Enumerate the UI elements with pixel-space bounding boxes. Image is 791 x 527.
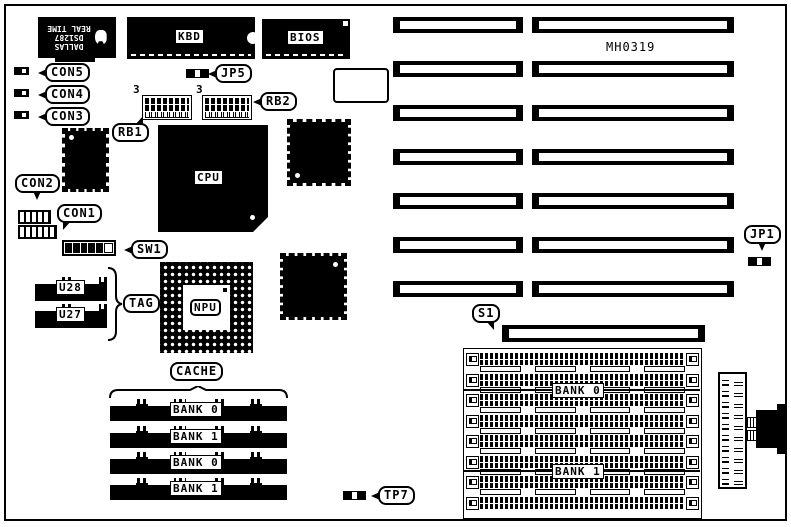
- rb1-callout: RB1: [112, 123, 149, 142]
- simm-latch-icon: [466, 415, 479, 428]
- pin1-mark: [223, 288, 227, 292]
- simm-memory-chip: [590, 448, 631, 454]
- simm-memory-chip: [644, 489, 685, 495]
- tag-callout: TAG: [123, 294, 160, 313]
- rb2-resistor-pack: [202, 95, 252, 120]
- cache-bank-label: BANK 1: [170, 429, 222, 444]
- pin1-dot: [69, 135, 74, 140]
- jp5-callout: JP5: [215, 64, 252, 83]
- jp5-jumper-icon: [186, 69, 209, 78]
- simm-chip-row: [480, 428, 685, 434]
- sw1-callout: SW1: [131, 240, 168, 259]
- oscillator-footprint: [333, 68, 389, 103]
- simm-latch-icon: [686, 456, 699, 469]
- simm-memory-chip: [480, 428, 521, 434]
- rtc-chip-print: DALLAS DS1287 REAL TIME: [40, 19, 114, 56]
- rb2-pin1-number: 3: [196, 83, 203, 96]
- con5-connector-icon: [14, 67, 29, 75]
- simm-latch-icon: [686, 374, 699, 387]
- sw1-dip-switch: [62, 240, 116, 256]
- rtc-function: REAL TIME: [47, 24, 90, 33]
- simm-memory-chip: [535, 428, 576, 434]
- cache-bank-label: BANK 0: [170, 402, 222, 417]
- simm-latch-icon: [686, 415, 699, 428]
- rtc-chip: DALLAS DS1287 REAL TIME: [38, 17, 116, 58]
- simm-bank0-label: BANK 0: [552, 383, 604, 398]
- simm-latch-icon: [686, 476, 699, 489]
- simm-memory-chip: [480, 448, 521, 454]
- kbd-chip-notch: [247, 32, 259, 44]
- cache-bank-label: BANK 1: [170, 481, 222, 496]
- npu-socket-cavity: NPU: [183, 285, 230, 330]
- din-aux-connector: [746, 417, 757, 428]
- simm-chip-row: [480, 489, 685, 495]
- dallas-logo-icon: [95, 30, 107, 45]
- simm-latch-icon: [466, 435, 479, 448]
- rtc-pins: [55, 58, 95, 62]
- u28-label: U28: [56, 280, 85, 295]
- simm-memory-chip: [590, 428, 631, 434]
- con3-callout: CON3: [45, 107, 90, 126]
- simm-memory-chip: [644, 428, 685, 434]
- isa-slot-16bit: [532, 281, 734, 297]
- simm-memory-chip: [535, 448, 576, 454]
- simm-latch-icon: [686, 497, 699, 510]
- isa-slot-8bit: [393, 193, 523, 209]
- simm-bank1-label: BANK 1: [552, 464, 604, 479]
- simm-socket: [480, 497, 685, 509]
- isa-slot-16bit: [532, 149, 734, 165]
- simm-socket-block: [463, 348, 702, 519]
- con3-connector-icon: [14, 111, 29, 119]
- npu-socket: NPU: [160, 262, 253, 353]
- simm-memory-chip: [480, 366, 521, 372]
- simm-socket: [480, 415, 685, 427]
- simm-latch-icon: [466, 394, 479, 407]
- simm-memory-chip: [590, 407, 631, 413]
- simm-memory-chip: [535, 407, 576, 413]
- simm-memory-chip: [644, 407, 685, 413]
- simm-memory-chip: [644, 448, 685, 454]
- cpu-label: CPU: [194, 170, 223, 185]
- simm-chip-row: [480, 407, 685, 413]
- isa-slot-8bit: [393, 17, 523, 33]
- simm-latch-icon: [466, 374, 479, 387]
- con2-connector-icon: [18, 210, 51, 224]
- simm-socket: [480, 435, 685, 447]
- rb2-callout: RB2: [260, 92, 297, 111]
- con1-callout: CON1: [57, 204, 102, 223]
- keyboard-din-mount: [777, 404, 786, 454]
- s1-slot: [502, 325, 705, 342]
- bios-chip-notch: [343, 21, 348, 26]
- rb1-pin1-number: 3: [133, 83, 140, 96]
- u27-chip: U27: [35, 304, 107, 328]
- isa-slot-16bit: [532, 193, 734, 209]
- cpu-chip: CPU: [158, 125, 268, 232]
- s1-callout: S1: [472, 304, 500, 323]
- simm-latch-icon: [466, 353, 479, 366]
- rtc-brand: DALLAS: [47, 42, 90, 51]
- con1-connector-icon: [18, 225, 57, 239]
- pin1-dot: [333, 262, 338, 267]
- cache-bank-row: BANK 1: [110, 478, 287, 500]
- chipset-qfp-a: [287, 119, 351, 186]
- simm-chip-row: [480, 448, 685, 454]
- simm-latch-icon: [686, 394, 699, 407]
- tp7-jumper-icon: [343, 491, 366, 500]
- cache-bank-row: BANK 1: [110, 426, 287, 448]
- isa-slot-8bit: [393, 105, 523, 121]
- motherboard-diagram: DALLAS DS1287 REAL TIME KBD BIOS CON5 CO…: [0, 0, 791, 527]
- simm-memory-chip: [590, 366, 631, 372]
- simm-memory-chip: [644, 366, 685, 372]
- simm-memory-chip: [480, 489, 521, 495]
- bios-label: BIOS: [287, 30, 324, 45]
- npu-label: NPU: [190, 299, 221, 316]
- board-part-number: MH0319: [606, 40, 655, 54]
- cache-bank-row: BANK 0: [110, 399, 287, 421]
- isa-slot-8bit: [393, 281, 523, 297]
- tp7-callout: TP7: [378, 486, 415, 505]
- din-aux-connector: [746, 430, 757, 441]
- isa-slot-16bit: [532, 61, 734, 77]
- isa-slot-8bit: [393, 237, 523, 253]
- bios-chip: BIOS: [262, 19, 350, 59]
- rtc-model: DS1287: [47, 33, 90, 42]
- power-connector-clips: [722, 376, 729, 485]
- isa-slot-8bit: [393, 61, 523, 77]
- tag-brace: [106, 266, 123, 342]
- isa-slot-16bit: [532, 237, 734, 253]
- con2-callout: CON2: [15, 174, 60, 193]
- kbd-chip: KBD: [127, 17, 255, 59]
- simm-latch-icon: [686, 435, 699, 448]
- pin1-dot: [250, 215, 255, 220]
- simm-memory-chip: [535, 489, 576, 495]
- chipset-qfp-left: [62, 128, 109, 192]
- chipset-qfp-b: [280, 253, 347, 320]
- jp1-jumper-icon: [748, 257, 771, 266]
- u27-label: U27: [56, 307, 85, 322]
- simm-socket: [480, 353, 685, 365]
- simm-latch-icon: [686, 353, 699, 366]
- simm-memory-chip: [480, 407, 521, 413]
- rb1-resistor-pack: [142, 95, 192, 120]
- con4-connector-icon: [14, 89, 29, 97]
- jp1-callout: JP1: [744, 225, 781, 244]
- con5-callout: CON5: [45, 63, 90, 82]
- rtc-chip-text: DALLAS DS1287 REAL TIME: [47, 24, 90, 51]
- isa-slot-8bit: [393, 149, 523, 165]
- simm-memory-chip: [535, 366, 576, 372]
- simm-latch-icon: [466, 476, 479, 489]
- kbd-label: KBD: [175, 29, 204, 44]
- isa-slot-16bit: [532, 17, 734, 33]
- cache-bank-row: BANK 0: [110, 452, 287, 474]
- pin1-dot: [295, 173, 300, 178]
- cache-callout: CACHE: [170, 362, 223, 381]
- simm-memory-chip: [590, 489, 631, 495]
- cache-brace: [108, 386, 289, 399]
- con4-callout: CON4: [45, 85, 90, 104]
- isa-slot-16bit: [532, 105, 734, 121]
- power-connector-pins: [734, 376, 743, 485]
- simm-latch-icon: [466, 456, 479, 469]
- simm-latch-icon: [466, 497, 479, 510]
- cache-bank-label: BANK 0: [170, 455, 222, 470]
- u28-chip: U28: [35, 277, 107, 301]
- power-connector: [718, 372, 747, 489]
- simm-chip-row: [480, 366, 685, 372]
